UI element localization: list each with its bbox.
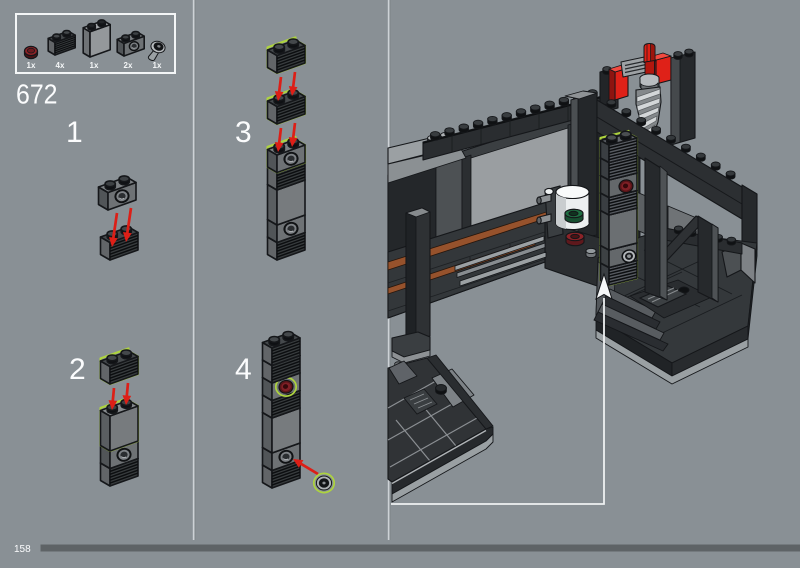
svg-text:3: 3 [235,116,252,149]
svg-text:1x: 1x [153,61,162,70]
svg-text:2x: 2x [124,61,133,70]
svg-text:158: 158 [14,544,31,555]
svg-text:2: 2 [69,353,86,386]
svg-text:4x: 4x [56,61,65,70]
svg-text:1: 1 [66,116,83,149]
svg-text:1x: 1x [27,61,36,70]
svg-text:1x: 1x [90,61,99,70]
svg-text:4: 4 [235,353,252,386]
svg-text:672: 672 [16,79,58,110]
